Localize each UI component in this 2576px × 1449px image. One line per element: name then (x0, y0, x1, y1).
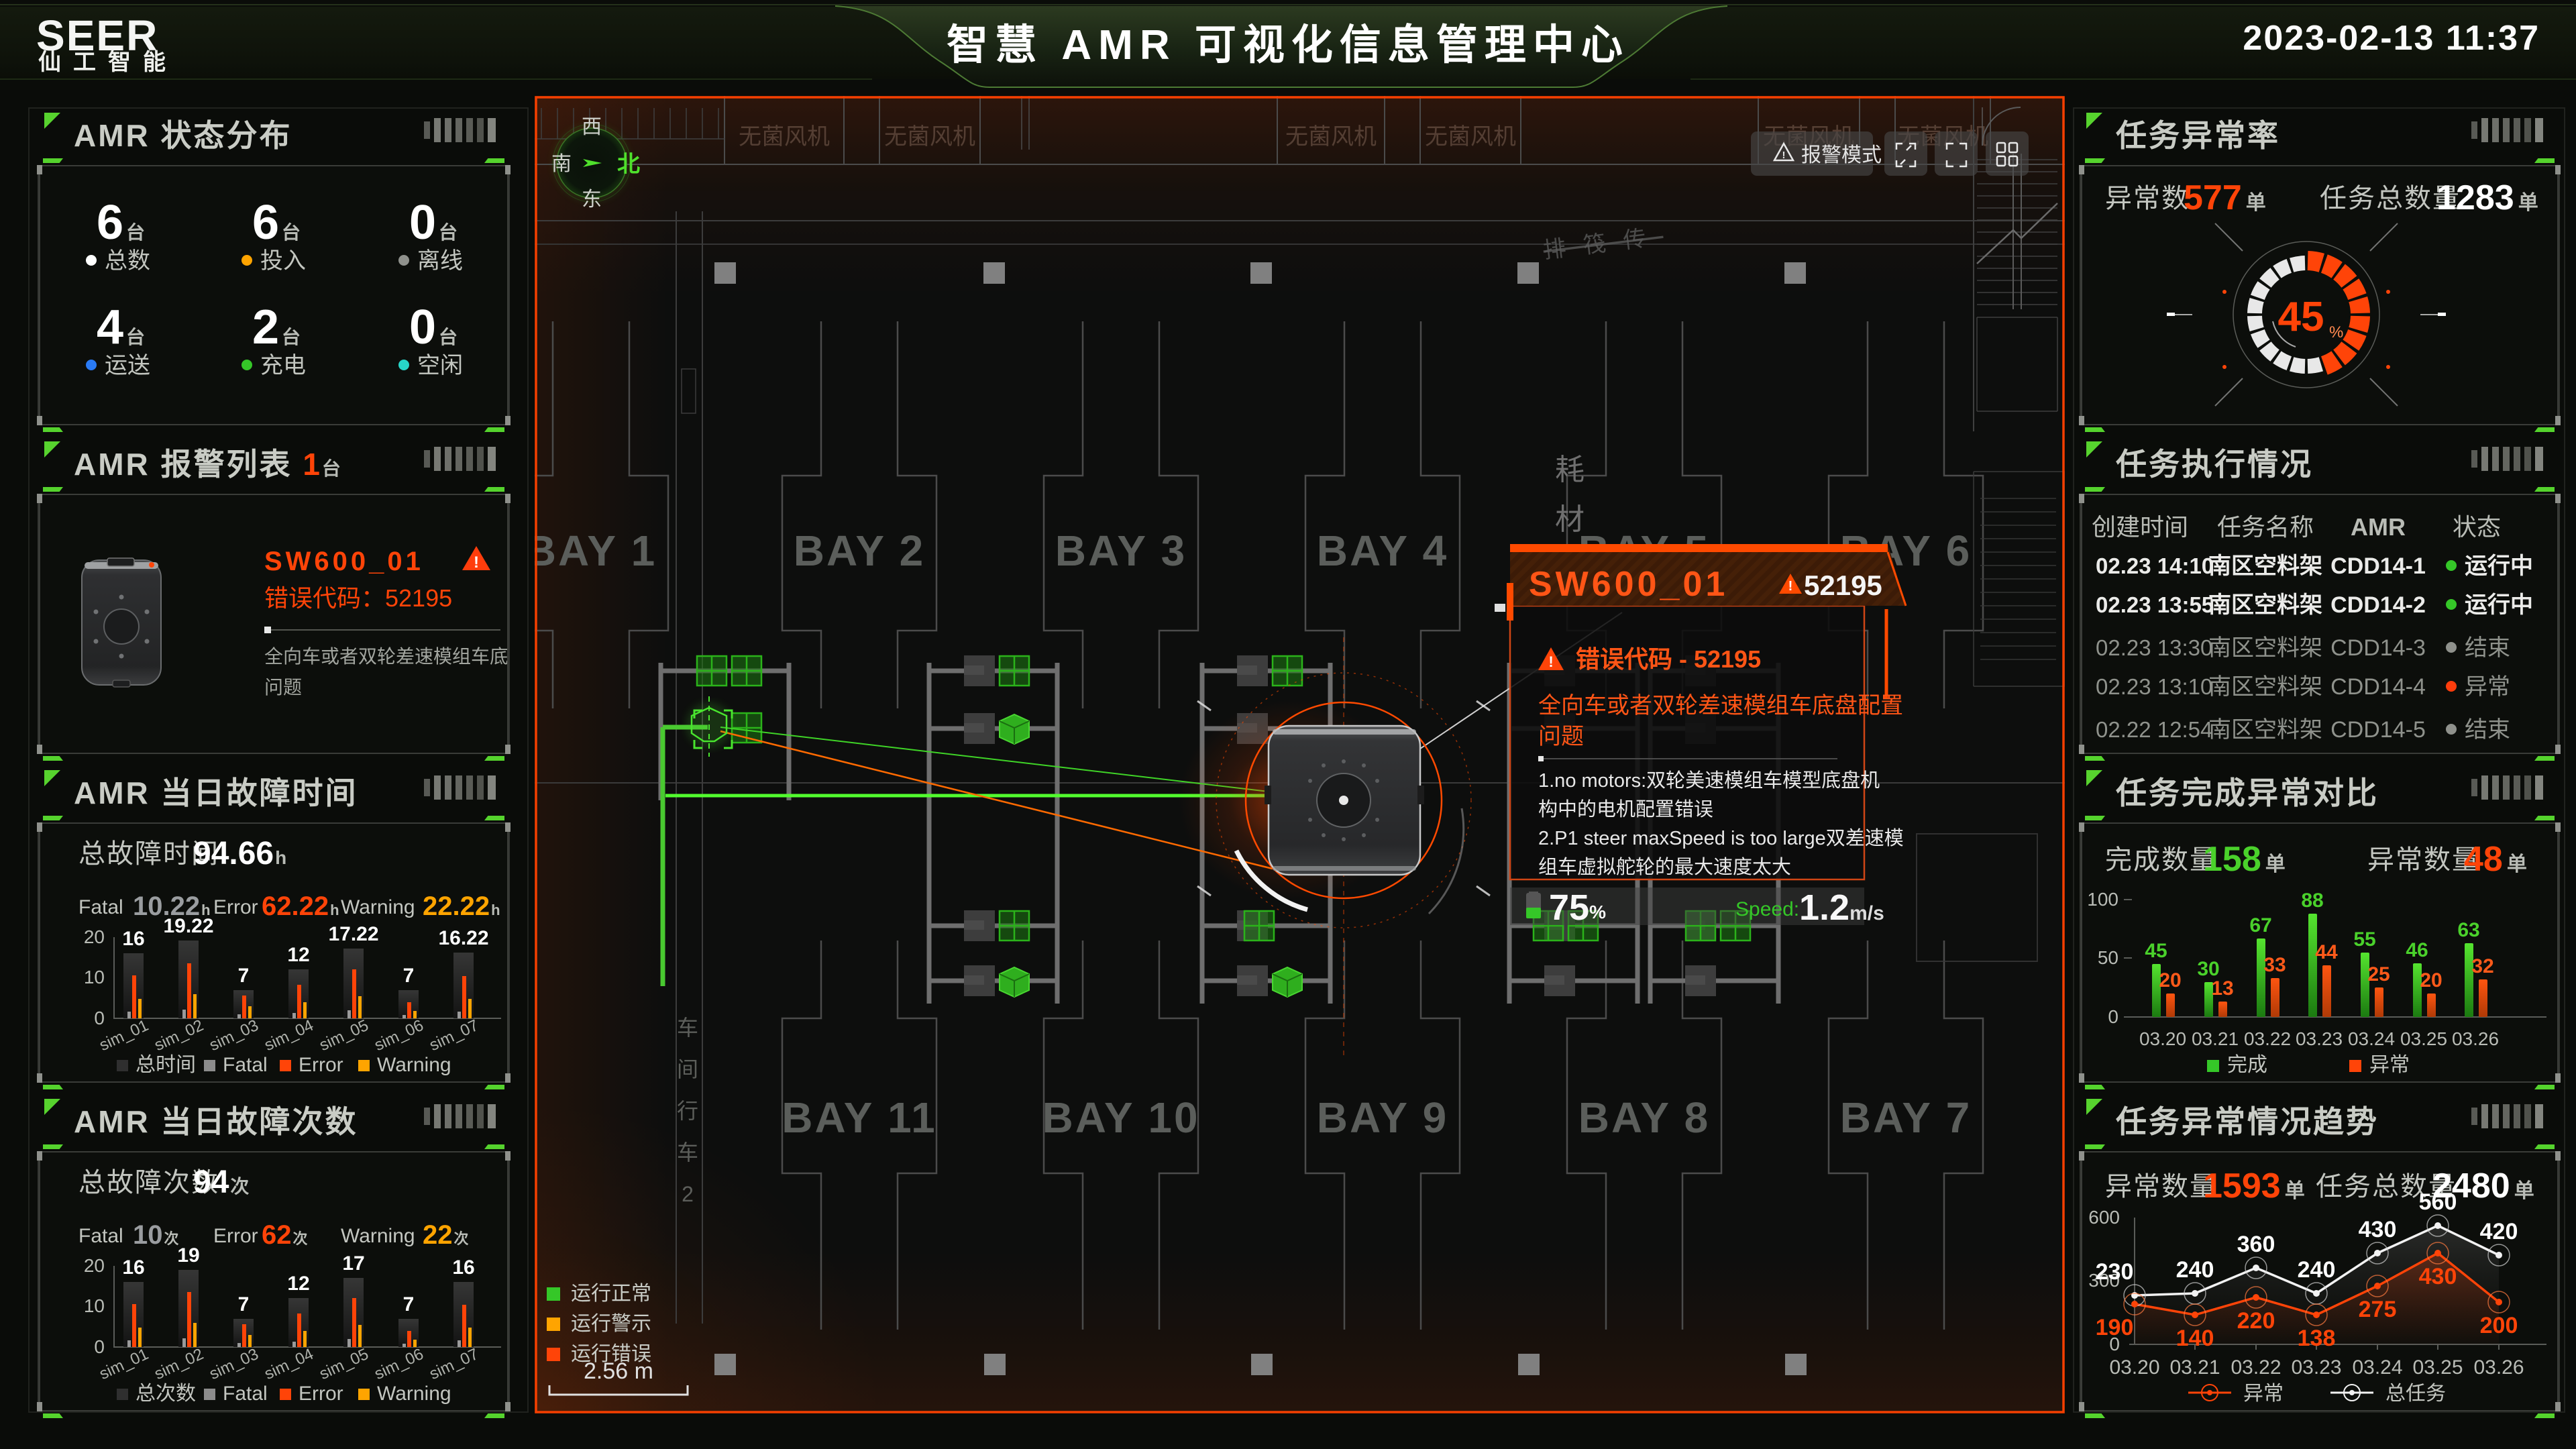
svg-text:190: 190 (2096, 1315, 2134, 1340)
svg-text:结束: 结束 (2465, 717, 2510, 743)
svg-text:7: 7 (403, 1293, 415, 1316)
svg-text:16: 16 (122, 1256, 144, 1279)
svg-text:03.22: 03.22 (2231, 1356, 2281, 1379)
svg-text:无菌风机: 无菌风机 (884, 124, 975, 150)
svg-text:6台: 6台 (252, 196, 301, 250)
svg-text:sim_05: sim_05 (317, 1345, 372, 1383)
svg-text:03.22: 03.22 (2244, 1028, 2291, 1049)
svg-text:7: 7 (403, 965, 415, 987)
svg-text:02.23 13:55: 02.23 13:55 (2096, 592, 2214, 617)
svg-text:运行中: 运行中 (2465, 592, 2533, 618)
svg-text:2台: 2台 (252, 301, 301, 354)
svg-text:03.24: 03.24 (2352, 1356, 2402, 1379)
svg-text:问题: 问题 (264, 677, 302, 698)
svg-text:耗: 耗 (1555, 453, 1585, 486)
svg-text:200: 200 (2480, 1313, 2518, 1338)
svg-text:20: 20 (2420, 969, 2442, 991)
svg-text:Fatal: Fatal (78, 1225, 123, 1247)
svg-text:Warning: Warning (341, 896, 415, 918)
svg-text:错误代码：52195: 错误代码：52195 (264, 584, 452, 612)
svg-text:577单: 577单 (2184, 178, 2266, 217)
svg-text:sim_05: sim_05 (317, 1016, 372, 1055)
svg-text:16: 16 (452, 1256, 474, 1279)
svg-text:结束: 结束 (2465, 635, 2510, 661)
svg-text:CDD14-2: CDD14-2 (2330, 592, 2426, 618)
svg-text:03.21: 03.21 (2192, 1028, 2239, 1049)
svg-text:北: 北 (617, 152, 640, 177)
svg-text:sim_03: sim_03 (207, 1345, 262, 1383)
svg-text:CDD14-4: CDD14-4 (2330, 674, 2426, 700)
svg-text:sim_03: sim_03 (207, 1016, 262, 1055)
svg-text:Error: Error (213, 1225, 258, 1247)
svg-text:BAY 11: BAY 11 (782, 1093, 937, 1142)
svg-text:间: 间 (677, 1057, 698, 1081)
svg-text:02.23 13:10: 02.23 13:10 (2096, 674, 2212, 699)
svg-text:无菌风机: 无菌风机 (1425, 124, 1516, 150)
svg-text:2.P1 steer maxSpeed is too lar: 2.P1 steer maxSpeed is too large双差速模 (1538, 827, 1904, 849)
svg-text:sim_04: sim_04 (262, 1345, 317, 1383)
svg-text:02.23 14:10: 02.23 14:10 (2096, 553, 2214, 578)
svg-text:45: 45 (2278, 294, 2324, 340)
svg-text:车: 车 (677, 1016, 698, 1040)
svg-text:430: 430 (2419, 1264, 2457, 1289)
svg-text:100: 100 (2087, 889, 2118, 910)
svg-text:360: 360 (2237, 1232, 2275, 1257)
svg-text:45: 45 (2145, 940, 2167, 962)
svg-text:南区空料架: 南区空料架 (2208, 592, 2322, 618)
svg-text:sim_06: sim_06 (372, 1345, 427, 1383)
svg-text:Warning: Warning (341, 1225, 415, 1247)
svg-text:BAY 3: BAY 3 (1055, 527, 1187, 575)
svg-text:2: 2 (682, 1182, 694, 1206)
svg-text:2023-02-13 11:37: 2023-02-13 11:37 (2243, 19, 2540, 58)
svg-text:西: 西 (582, 116, 602, 138)
svg-text:!: ! (1788, 579, 1793, 594)
svg-text:sim_02: sim_02 (152, 1345, 207, 1383)
svg-text:420: 420 (2480, 1219, 2518, 1244)
svg-text:SW600_01: SW600_01 (1529, 565, 1728, 604)
svg-text:140: 140 (2176, 1326, 2214, 1351)
svg-text:220: 220 (2237, 1308, 2275, 1334)
svg-text:!: ! (474, 553, 479, 572)
svg-text:2.56 m: 2.56 m (584, 1358, 653, 1384)
svg-text:sim_01: sim_01 (97, 1016, 152, 1055)
svg-text:运行中: 运行中 (2465, 553, 2533, 579)
svg-text:50: 50 (2098, 947, 2118, 968)
svg-text:03.23: 03.23 (2291, 1356, 2341, 1379)
svg-text:17: 17 (342, 1252, 364, 1275)
svg-text:10: 10 (84, 1295, 105, 1316)
svg-text:错误代码 - 52195: 错误代码 - 52195 (1576, 645, 1761, 673)
svg-text:异常数: 异常数 (2105, 184, 2190, 213)
svg-text:报警模式: 报警模式 (1801, 144, 1882, 166)
svg-text:0: 0 (94, 1336, 105, 1357)
svg-text:240: 240 (2298, 1257, 2336, 1283)
svg-text:离线: 离线 (417, 248, 463, 274)
svg-text:12: 12 (287, 1273, 309, 1295)
svg-text:67: 67 (2249, 914, 2271, 936)
svg-text:东: 东 (582, 189, 602, 211)
svg-text:总任务: 总任务 (2385, 1383, 2446, 1405)
svg-text:南区空料架: 南区空料架 (2208, 674, 2322, 700)
svg-text:32: 32 (2471, 955, 2493, 977)
svg-text:22.22h: 22.22h (423, 892, 500, 921)
svg-text:03.23: 03.23 (2296, 1028, 2343, 1049)
svg-text:BAY 7: BAY 7 (1840, 1093, 1972, 1142)
svg-text:构中的电机配置错误: 构中的电机配置错误 (1538, 798, 1713, 820)
svg-text:44: 44 (2315, 941, 2338, 963)
svg-text:异常: 异常 (2243, 1383, 2284, 1405)
svg-text:94.66h: 94.66h (193, 836, 286, 871)
svg-text:无菌风机: 无菌风机 (739, 124, 830, 150)
svg-text:%: % (2329, 323, 2343, 341)
svg-text:运行警示: 运行警示 (571, 1313, 651, 1335)
svg-text:运送: 运送 (105, 353, 150, 378)
svg-text:46: 46 (2406, 939, 2428, 961)
svg-text:异常: 异常 (2369, 1054, 2410, 1076)
svg-text:异常数量: 异常数量 (2105, 1172, 2218, 1201)
svg-text:投入: 投入 (260, 248, 306, 274)
svg-text:BAY 8: BAY 8 (1578, 1093, 1710, 1142)
svg-text:275: 275 (2359, 1297, 2397, 1322)
svg-text:Warning: Warning (377, 1383, 451, 1405)
svg-text:BAY 4: BAY 4 (1317, 527, 1448, 575)
svg-text:sim_04: sim_04 (262, 1016, 317, 1055)
svg-text:Warning: Warning (377, 1054, 451, 1076)
svg-text:任务名称: 任务名称 (2217, 513, 2314, 541)
svg-text:总次数: 总次数 (136, 1383, 196, 1405)
svg-text:CDD14-5: CDD14-5 (2330, 717, 2426, 743)
svg-text:600: 600 (2088, 1207, 2120, 1228)
svg-text:AMR: AMR (2351, 513, 2406, 541)
svg-text:16.22: 16.22 (438, 927, 488, 949)
svg-text:Error: Error (299, 1383, 343, 1405)
svg-text:异常: 异常 (2465, 674, 2510, 700)
svg-text:BAY 9: BAY 9 (1317, 1093, 1448, 1142)
svg-text:Error: Error (299, 1054, 343, 1076)
svg-text:全向车或者双轮差速模组车底盘配置: 全向车或者双轮差速模组车底盘配置 (264, 646, 507, 667)
svg-text:0: 0 (94, 1008, 105, 1028)
svg-text:20: 20 (2159, 969, 2181, 991)
svg-text:创建时间: 创建时间 (2092, 513, 2188, 541)
svg-text:430: 430 (2359, 1217, 2397, 1242)
svg-text:状态: 状态 (2453, 513, 2501, 541)
svg-text:48单: 48单 (2464, 840, 2527, 879)
svg-text:03.20: 03.20 (2109, 1356, 2159, 1379)
svg-text:03.25: 03.25 (2412, 1356, 2463, 1379)
svg-text:12: 12 (287, 944, 309, 966)
svg-text:138: 138 (2298, 1326, 2336, 1351)
svg-text:无菌风机: 无菌风机 (1285, 124, 1377, 150)
svg-text:1.no motors:双轮美速模组车模型底盘机: 1.no motors:双轮美速模组车模型底盘机 (1538, 769, 1880, 792)
svg-text:CDD14-3: CDD14-3 (2330, 635, 2426, 661)
svg-text:CDD14-1: CDD14-1 (2330, 553, 2426, 579)
svg-text:6台: 6台 (97, 196, 145, 250)
svg-text:Error: Error (213, 896, 258, 918)
svg-text:总数: 总数 (105, 248, 150, 274)
svg-text:94次: 94次 (193, 1165, 249, 1200)
svg-text:7: 7 (238, 1293, 250, 1316)
svg-text:空闲: 空闲 (417, 353, 463, 378)
svg-text:19.22: 19.22 (163, 915, 213, 937)
svg-text:问题: 问题 (1538, 724, 1584, 749)
svg-text:1283单: 1283单 (2436, 178, 2538, 217)
svg-text:03.26: 03.26 (2473, 1356, 2524, 1379)
svg-text:SW600_01: SW600_01 (264, 547, 424, 576)
svg-text:03.25: 03.25 (2400, 1028, 2447, 1049)
svg-text:南区空料架: 南区空料架 (2208, 553, 2322, 579)
svg-text:20: 20 (84, 926, 105, 947)
svg-text:19: 19 (177, 1244, 199, 1267)
svg-text:异常数量: 异常数量 (2367, 845, 2480, 875)
svg-text:62次: 62次 (262, 1220, 308, 1250)
svg-text:03.20: 03.20 (2139, 1028, 2186, 1049)
svg-text:0: 0 (2108, 1006, 2118, 1027)
svg-text:63: 63 (2457, 919, 2479, 941)
svg-text:sim_07: sim_07 (427, 1016, 482, 1055)
svg-text:!: ! (1548, 653, 1553, 670)
svg-text:材: 材 (1555, 503, 1585, 536)
svg-text:7: 7 (238, 965, 250, 987)
svg-text:25: 25 (2367, 963, 2390, 985)
svg-text:南区空料架: 南区空料架 (2208, 717, 2322, 743)
svg-text:1593单: 1593单 (2203, 1167, 2305, 1205)
svg-text:02.23 13:30: 02.23 13:30 (2096, 635, 2212, 660)
svg-text:230: 230 (2096, 1259, 2134, 1285)
svg-text:sim_01: sim_01 (97, 1345, 152, 1383)
svg-text:仙工智能: 仙工智能 (38, 50, 178, 75)
svg-text:0台: 0台 (409, 196, 458, 250)
svg-text:完成数量: 完成数量 (2105, 845, 2218, 875)
svg-text:88: 88 (2301, 890, 2323, 912)
svg-text:560: 560 (2419, 1189, 2457, 1215)
svg-text:13: 13 (2211, 977, 2233, 1000)
svg-text:南: 南 (551, 153, 572, 175)
svg-text:运行正常: 运行正常 (571, 1283, 651, 1305)
svg-text:sim_07: sim_07 (427, 1345, 482, 1383)
svg-text:16: 16 (122, 928, 144, 950)
svg-text:55: 55 (2353, 928, 2375, 951)
svg-text:sim_02: sim_02 (152, 1016, 207, 1055)
svg-text:完成: 完成 (2227, 1054, 2267, 1076)
svg-text:!: ! (1782, 150, 1786, 161)
svg-text:Speed:: Speed: (1735, 898, 1799, 920)
svg-text:03.26: 03.26 (2452, 1028, 2499, 1049)
svg-text:10次: 10次 (133, 1220, 179, 1250)
svg-text:0台: 0台 (409, 301, 458, 354)
svg-text:南区空料架: 南区空料架 (2208, 635, 2322, 661)
svg-text:52195: 52195 (1804, 570, 1882, 601)
svg-text:20: 20 (84, 1255, 105, 1276)
svg-text:BAY 2: BAY 2 (794, 527, 925, 575)
svg-text:行: 行 (677, 1099, 698, 1123)
svg-text:158单: 158单 (2203, 840, 2286, 879)
svg-text:充电: 充电 (260, 353, 306, 378)
svg-text:全向车或者双轮差速模组车底盘配置: 全向车或者双轮差速模组车底盘配置 (1538, 693, 1903, 718)
svg-text:4台: 4台 (97, 301, 145, 354)
svg-text:组车虚拟舵轮的最大速度太大: 组车虚拟舵轮的最大速度太大 (1538, 856, 1791, 878)
svg-text:62.22h: 62.22h (262, 892, 339, 921)
svg-text:车: 车 (677, 1140, 698, 1165)
svg-text:sim_06: sim_06 (372, 1016, 427, 1055)
svg-text:17.22: 17.22 (328, 923, 378, 945)
svg-text:02.22 12:54: 02.22 12:54 (2096, 717, 2212, 742)
svg-text:03.24: 03.24 (2348, 1028, 2395, 1049)
svg-text:22次: 22次 (423, 1220, 469, 1250)
svg-text:BAY 1: BAY 1 (535, 527, 657, 575)
svg-text:Fatal: Fatal (78, 896, 123, 918)
svg-text:Fatal: Fatal (223, 1383, 268, 1405)
svg-text:Fatal: Fatal (223, 1054, 268, 1076)
svg-text:33: 33 (2263, 954, 2286, 976)
svg-text:总时间: 总时间 (136, 1054, 196, 1076)
svg-text:240: 240 (2176, 1257, 2214, 1283)
svg-text:智慧 AMR 可视化信息管理中心: 智慧 AMR 可视化信息管理中心 (947, 22, 1629, 68)
svg-text:BAY 10: BAY 10 (1042, 1093, 1199, 1142)
svg-text:03.21: 03.21 (2169, 1356, 2220, 1379)
svg-text:10: 10 (84, 967, 105, 987)
